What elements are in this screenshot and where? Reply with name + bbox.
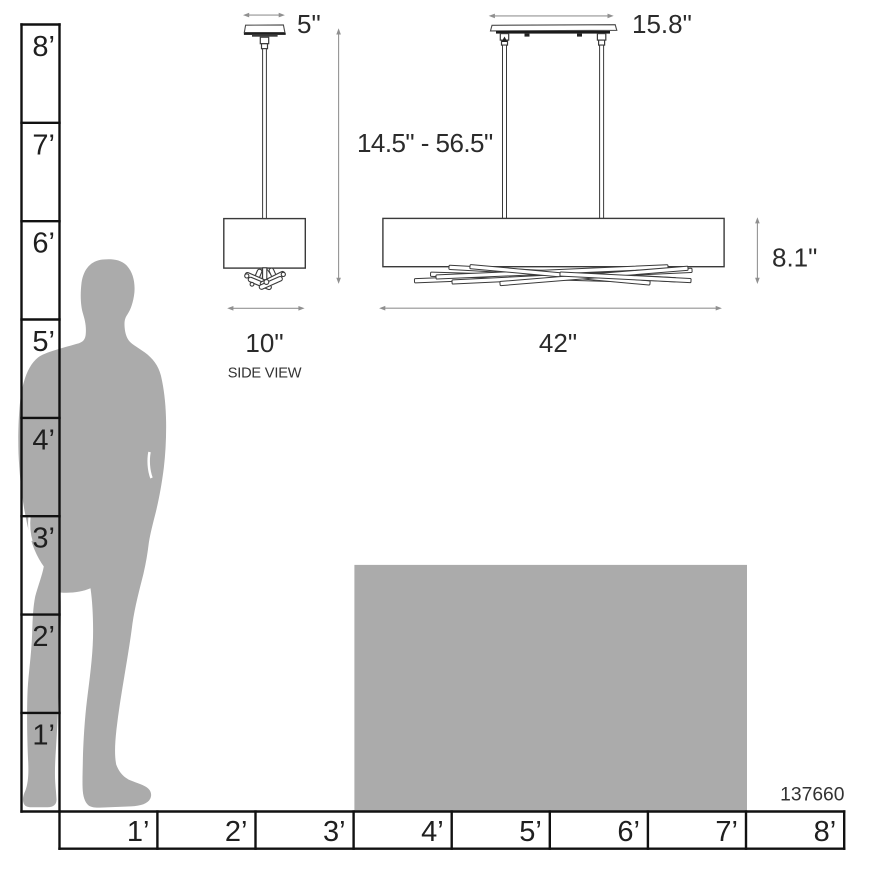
svg-text:3’: 3’ [323, 816, 346, 848]
svg-text:6’: 6’ [617, 816, 640, 848]
svg-text:8’: 8’ [32, 31, 55, 63]
svg-text:6’: 6’ [32, 228, 55, 260]
svg-text:8.1": 8.1" [772, 243, 817, 273]
svg-text:2’: 2’ [225, 816, 248, 848]
svg-text:7’: 7’ [715, 816, 738, 848]
svg-text:3’: 3’ [32, 523, 55, 555]
svg-text:7’: 7’ [32, 129, 55, 161]
svg-text:SIDE VIEW: SIDE VIEW [228, 366, 302, 382]
svg-text:10": 10" [245, 328, 283, 358]
svg-text:15.8": 15.8" [632, 9, 692, 39]
svg-text:4’: 4’ [421, 816, 444, 848]
svg-text:5’: 5’ [32, 326, 55, 358]
svg-text:2’: 2’ [32, 621, 55, 653]
svg-text:1’: 1’ [127, 816, 150, 848]
svg-text:5": 5" [297, 9, 321, 39]
svg-text:1’: 1’ [32, 719, 55, 751]
svg-text:137660: 137660 [780, 785, 844, 806]
svg-text:4’: 4’ [32, 424, 55, 456]
svg-text:14.5" - 56.5": 14.5" - 56.5" [357, 128, 493, 158]
svg-text:5’: 5’ [519, 816, 542, 848]
svg-text:8’: 8’ [814, 816, 837, 848]
svg-text:42": 42" [539, 328, 577, 358]
